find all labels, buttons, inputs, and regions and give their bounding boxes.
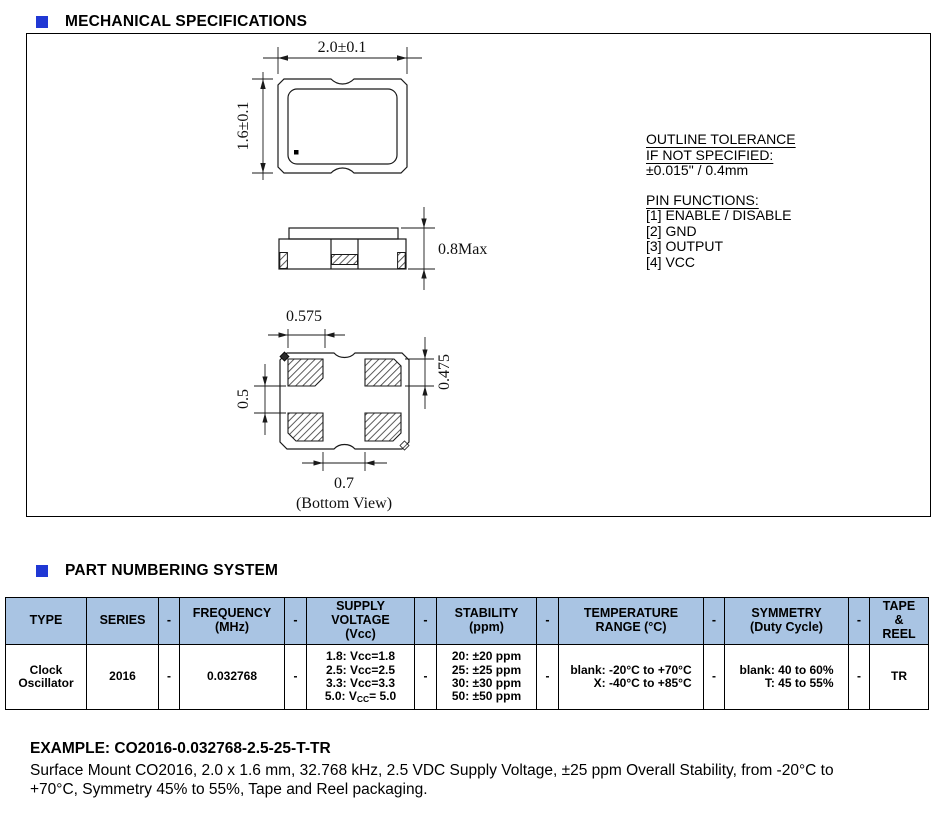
- value-dash-2: -: [285, 645, 307, 710]
- header-dash-2: -: [285, 598, 307, 645]
- header-symmetry: SYMMETRY (Duty Cycle): [725, 598, 849, 645]
- bottom-view-pad-width-dimension: 0.575: [286, 308, 322, 325]
- outline-tolerance-title: OUTLINE TOLERANCE: [646, 132, 876, 148]
- blue-square-bullet-icon: [36, 565, 48, 577]
- blue-square-bullet-icon: [36, 16, 48, 28]
- top-view-width-dimension: 2.0±0.1: [318, 39, 367, 56]
- mechanical-drawing-frame: 2.0±0.1 1.6±0.1 0.8Max: [26, 33, 931, 517]
- value-dash-4: -: [537, 645, 559, 710]
- section-title-part-numbering: PART NUMBERING SYSTEM: [65, 562, 278, 580]
- value-dash-3: -: [415, 645, 437, 710]
- side-pad-right: [398, 253, 406, 269]
- header-frequency: FREQUENCY (MHz): [180, 598, 285, 645]
- pin-function-1: [1] ENABLE / DISABLE: [646, 208, 876, 224]
- value-tape-reel: TR: [870, 645, 929, 710]
- bottom-view-pad-gap-vertical-dimension: 0.5: [235, 389, 252, 409]
- part-numbering-system-header: PART NUMBERING SYSTEM: [36, 562, 278, 580]
- value-dash-1: -: [159, 645, 180, 710]
- example-description: Surface Mount CO2016, 2.0 x 1.6 mm, 32.7…: [30, 761, 930, 799]
- value-symmetry: blank: 40 to 60% T: 45 to 55%: [725, 645, 849, 710]
- mechanical-specifications-header: MECHANICAL SPECIFICATIONS: [36, 13, 307, 31]
- bottom-view-pad-height-dimension: 0.475: [436, 354, 453, 390]
- value-dash-5: -: [704, 645, 725, 710]
- value-dash-6: -: [849, 645, 870, 710]
- table-header-row: TYPE SERIES - FREQUENCY (MHz) - SUPPLY V…: [6, 598, 929, 645]
- header-stability: STABILITY (ppm): [437, 598, 537, 645]
- value-series: 2016: [87, 645, 159, 710]
- value-frequency: 0.032768: [180, 645, 285, 710]
- example-block: EXAMPLE: CO2016-0.032768-2.5-25-T-TR Sur…: [30, 740, 930, 799]
- value-supply-voltage: 1.8: Vcc=1.8 2.5: Vcc=2.5 3.3: Vcc=3.3 5…: [307, 645, 415, 710]
- header-dash-5: -: [704, 598, 725, 645]
- top-view-height-dimension: 1.6±0.1: [235, 102, 252, 151]
- header-dash-1: -: [159, 598, 180, 645]
- pin-functions-title: PIN FUNCTIONS:: [646, 193, 876, 209]
- side-pad-left: [280, 253, 288, 269]
- drawing-notes: OUTLINE TOLERANCE IF NOT SPECIFIED: ±0.0…: [646, 132, 876, 270]
- pin1-dot-marker: [294, 150, 299, 155]
- top-view-drawing: 2.0±0.1 1.6±0.1: [235, 39, 422, 180]
- header-dash-3: -: [415, 598, 437, 645]
- bottom-view-drawing: 0.575 0.475 0.5 0.7 (Bottom View): [235, 308, 453, 512]
- header-dash-4: -: [537, 598, 559, 645]
- header-tape-reel: TAPE & REEL: [870, 598, 929, 645]
- bottom-view-caption: (Bottom View): [296, 495, 392, 512]
- pin-function-3: [3] OUTPUT: [646, 239, 876, 255]
- bottom-pad-4: [365, 359, 401, 386]
- value-type: Clock Oscillator: [6, 645, 87, 710]
- side-pad-center: [332, 255, 358, 265]
- bottom-pad-3: [365, 413, 401, 441]
- example-part-number: EXAMPLE: CO2016-0.032768-2.5-25-T-TR: [30, 740, 930, 758]
- bottom-view-pad-gap-horizontal-dimension: 0.7: [334, 475, 354, 492]
- pin-function-2: [2] GND: [646, 224, 876, 240]
- value-temperature-range: blank: -20°C to +70°C X: -40°C to +85°C: [559, 645, 704, 710]
- header-supply-voltage: SUPPLY VOLTAGE (Vcc): [307, 598, 415, 645]
- bottom-pad-2: [288, 413, 323, 441]
- header-series: SERIES: [87, 598, 159, 645]
- value-stability: 20: ±20 ppm 25: ±25 ppm 30: ±30 ppm 50: …: [437, 645, 537, 710]
- table-data-row: Clock Oscillator 2016 - 0.032768 - 1.8: …: [6, 645, 929, 710]
- side-view-height-dimension: 0.8Max: [438, 241, 487, 258]
- pin-function-4: [4] VCC: [646, 255, 876, 271]
- mechanical-drawing: 2.0±0.1 1.6±0.1 0.8Max: [27, 34, 930, 516]
- section-title-mechanical: MECHANICAL SPECIFICATIONS: [65, 13, 307, 31]
- outline-tolerance-subtitle: IF NOT SPECIFIED:: [646, 148, 876, 164]
- header-type: TYPE: [6, 598, 87, 645]
- header-dash-6: -: [849, 598, 870, 645]
- bottom-pad-1: [288, 359, 323, 386]
- outline-tolerance-value: ±0.015" / 0.4mm: [646, 163, 876, 179]
- part-numbering-table: TYPE SERIES - FREQUENCY (MHz) - SUPPLY V…: [5, 597, 929, 710]
- side-view-drawing: 0.8Max: [279, 207, 487, 290]
- header-temperature-range: TEMPERATURE RANGE (°C): [559, 598, 704, 645]
